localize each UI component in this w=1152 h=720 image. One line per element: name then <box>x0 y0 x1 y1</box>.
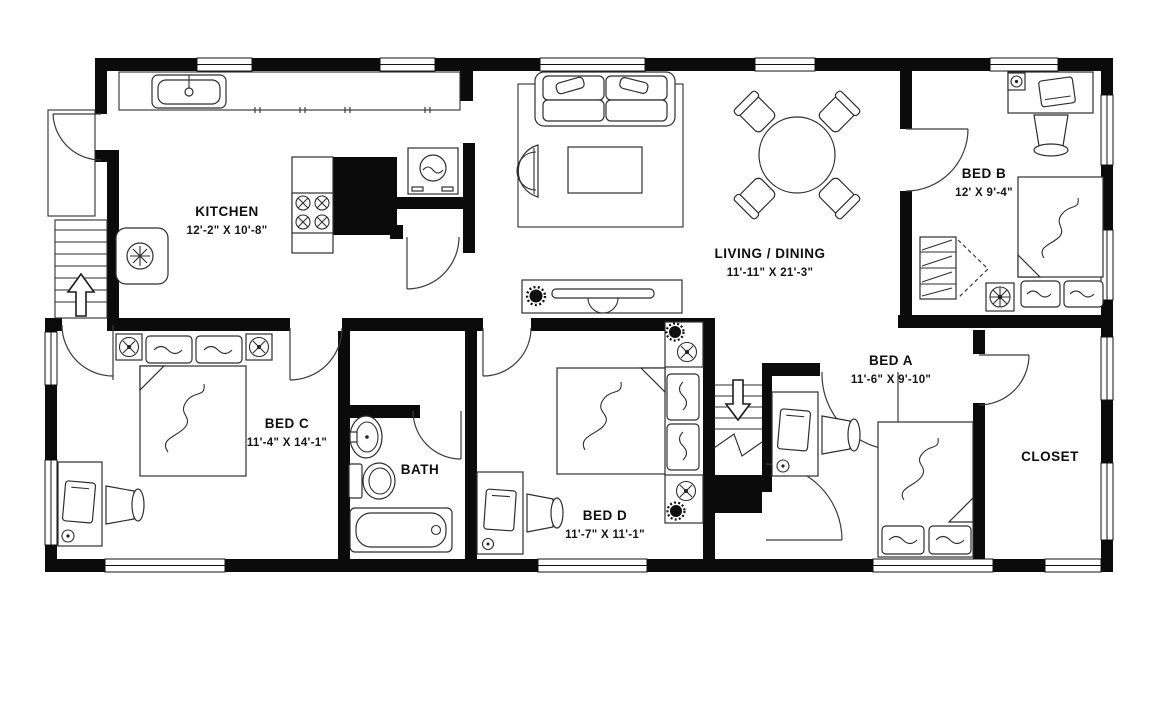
bed <box>140 366 246 476</box>
dining-table-set <box>733 90 861 220</box>
bed <box>1018 177 1103 307</box>
window <box>45 332 57 385</box>
window <box>540 58 645 71</box>
sofa <box>535 72 675 126</box>
bed <box>557 368 665 474</box>
ceiling-fan-icon <box>116 334 142 360</box>
pillow <box>929 526 971 554</box>
laundry-door <box>407 237 459 289</box>
window <box>197 58 252 71</box>
bed <box>878 422 973 557</box>
pillow <box>667 424 699 470</box>
bed-c-door-left <box>62 325 113 380</box>
pillow <box>146 336 192 363</box>
bed-c-furniture <box>58 334 272 546</box>
room-dims-living-dining: 11'-11" X 21'-3" <box>727 267 813 279</box>
room-dims-bed-b: 12' X 9'-4" <box>955 187 1013 199</box>
laptop <box>1038 77 1075 107</box>
nightstand <box>665 322 703 367</box>
kitchen-fixtures <box>116 72 460 284</box>
window <box>990 58 1058 71</box>
bathroom-sink <box>350 416 382 458</box>
window <box>1101 463 1113 540</box>
tv-console <box>522 280 682 313</box>
stove <box>292 157 333 253</box>
bed-d-door <box>483 328 531 376</box>
down-arrow-icon <box>726 380 750 420</box>
room-dims-bed-d: 11'-7" X 11'-1" <box>565 529 645 541</box>
coffee-table <box>568 147 642 193</box>
bath-fixtures <box>349 416 452 552</box>
armchair <box>517 145 538 197</box>
room-label-living-dining: LIVING / DINING <box>714 246 825 261</box>
tv <box>552 289 654 298</box>
pillow <box>667 374 699 420</box>
room-label-bath: BATH <box>401 462 440 477</box>
closet-door <box>979 355 1029 405</box>
room-label-bed-b: BED B <box>962 166 1007 181</box>
bed-c-door-right <box>290 328 342 380</box>
window <box>755 58 815 71</box>
desk <box>772 392 818 476</box>
pillow <box>1064 281 1103 307</box>
desk-chair <box>106 486 144 524</box>
kitchen-sink <box>152 75 226 108</box>
nightstand <box>665 475 703 523</box>
stairs-down <box>714 380 762 456</box>
room-label-bed-c: BED C <box>265 416 310 431</box>
room-label-bed-d: BED D <box>583 508 628 523</box>
bed-a-furniture <box>772 392 973 557</box>
desk <box>58 462 102 546</box>
window <box>1045 559 1101 572</box>
refrigerator <box>116 228 168 284</box>
ceiling-fan-icon <box>246 334 272 360</box>
pillow <box>196 336 242 363</box>
window <box>1101 337 1113 400</box>
stairs-up <box>48 110 107 318</box>
desk-chair <box>822 416 860 454</box>
bifold-closet-doors <box>958 240 988 298</box>
floor-plan-drawing: KITCHEN 12'-2" X 10'-8" LIVING / DINING … <box>0 0 1152 720</box>
wardrobe-shelves <box>920 237 956 299</box>
window <box>538 559 647 572</box>
room-label-closet: CLOSET <box>1021 449 1079 464</box>
window <box>45 460 57 545</box>
room-label-bed-a: BED A <box>869 353 913 368</box>
floor-plan: KITCHEN 12'-2" X 10'-8" LIVING / DINING … <box>0 0 1152 720</box>
toilet <box>349 463 395 499</box>
pillow <box>1021 281 1060 307</box>
desk-chair <box>527 494 563 532</box>
desk <box>1008 72 1093 113</box>
laptop <box>777 409 810 451</box>
room-dims-bed-a: 11'-6" X 9'-10" <box>851 374 931 386</box>
window <box>380 58 435 71</box>
window <box>873 559 993 572</box>
bath-door <box>413 411 461 459</box>
window <box>105 559 225 572</box>
window <box>1101 95 1113 165</box>
bathtub <box>350 508 452 552</box>
ceiling-fan-icon <box>986 283 1014 311</box>
room-dims-kitchen: 12'-2" X 10'-8" <box>187 225 268 237</box>
bed-b-door <box>906 129 968 191</box>
desk-chair <box>1034 115 1068 156</box>
laptop <box>62 481 95 523</box>
up-arrow-icon <box>68 274 94 316</box>
washer <box>408 148 458 194</box>
desk <box>477 472 523 554</box>
dining-table <box>759 117 835 193</box>
room-label-kitchen: KITCHEN <box>195 204 259 219</box>
laptop <box>484 489 517 531</box>
room-dims-bed-c: 11'-4" X 14'-1" <box>247 437 327 449</box>
pillow <box>882 526 924 554</box>
entry-door <box>53 114 101 160</box>
